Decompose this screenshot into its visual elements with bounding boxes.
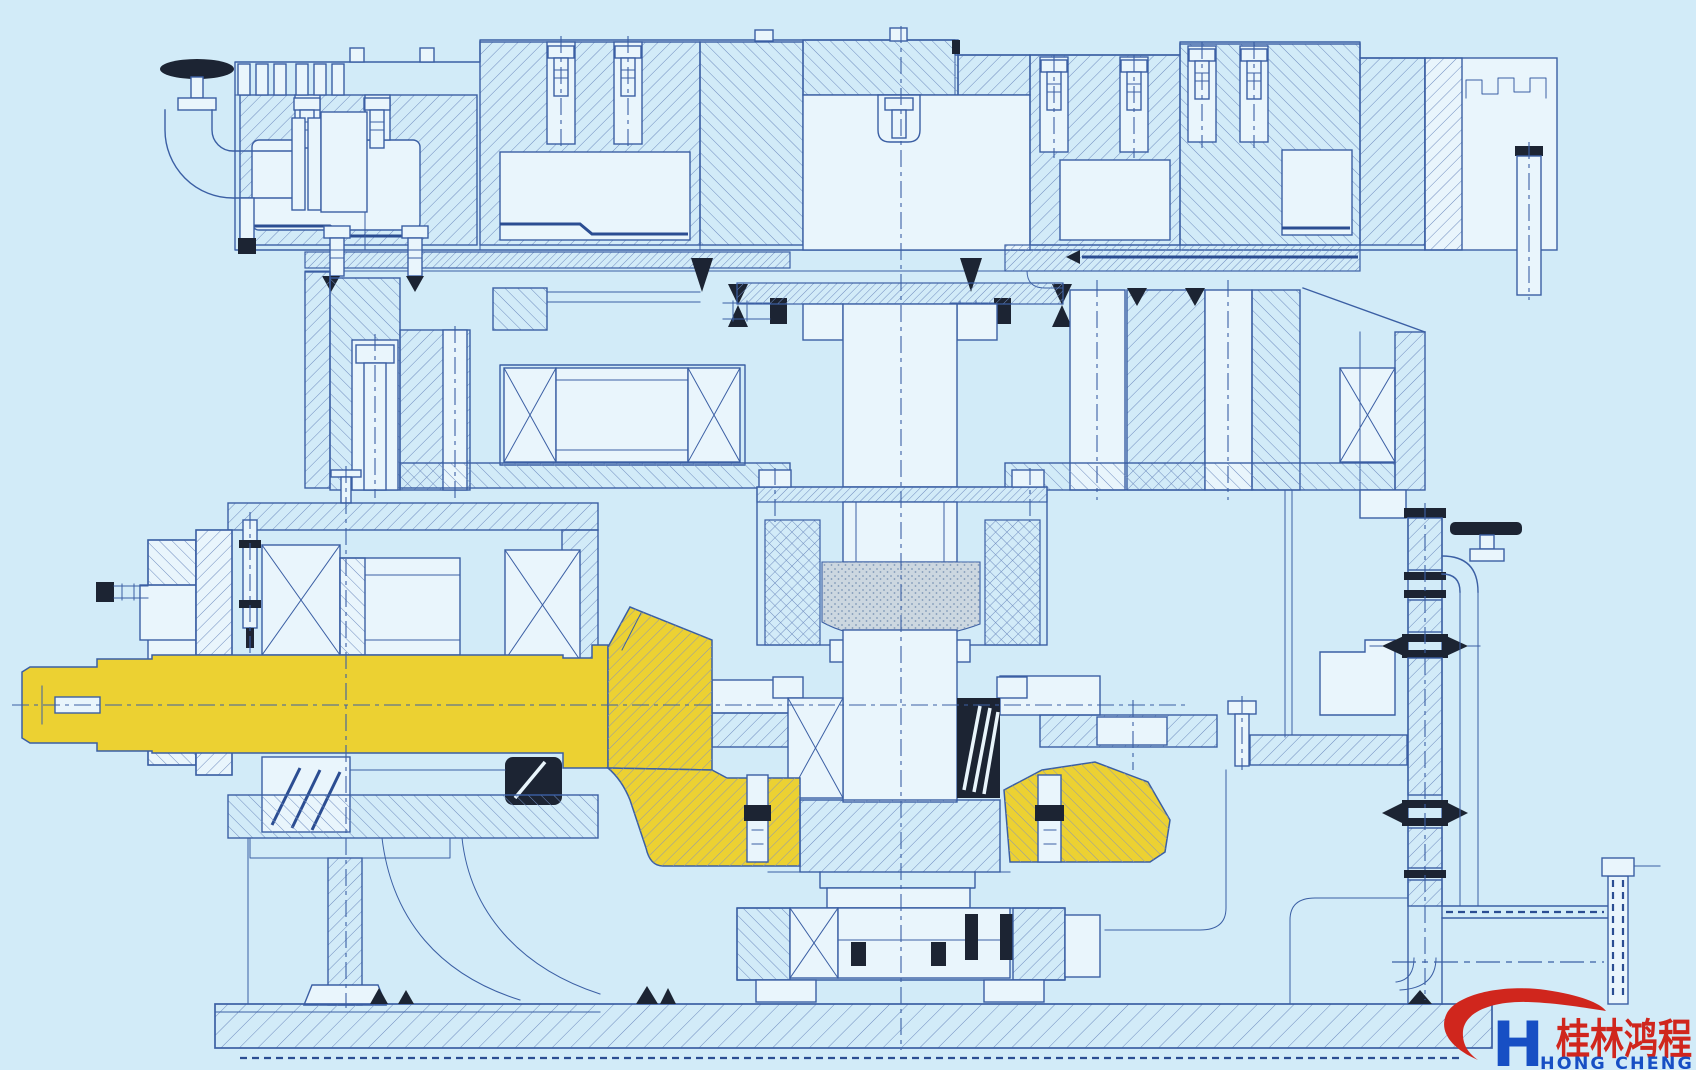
upper-bearing-block — [500, 365, 745, 465]
ring-gear-bolt-left — [744, 775, 771, 862]
main-vertical-shaft-upper — [843, 304, 957, 487]
input-shaft — [22, 645, 608, 768]
shaft-cap-flange — [737, 283, 1063, 304]
logo-monogram: H — [1492, 1008, 1544, 1070]
valve-handwheel-icon — [160, 59, 234, 79]
bottom-bearing-assembly — [737, 908, 1100, 1002]
upper-gearbox — [305, 272, 1425, 490]
drawing-canvas: H 桂林鸿程 HONG CHENG — [0, 0, 1696, 1070]
support-leg — [328, 858, 362, 1005]
valve-handle-icon — [1450, 522, 1522, 535]
cover-bolt-comb — [236, 48, 434, 95]
return-valve — [1442, 522, 1522, 906]
ring-gear-bolt-right — [1035, 775, 1064, 862]
logo-english-name: HONG CHENG — [1540, 1054, 1694, 1070]
cover-right-extension — [1425, 58, 1557, 295]
tie-rod-column-stack — [1070, 288, 1300, 490]
base-plate — [215, 986, 1492, 1058]
tank-end-flange — [1608, 876, 1628, 1004]
main-vertical-shaft-lower — [843, 630, 957, 802]
gearbox-cross-section-drawing: H 桂林鸿程 HONG CHENG — [0, 0, 1696, 1070]
gear-coupling — [757, 470, 1047, 645]
